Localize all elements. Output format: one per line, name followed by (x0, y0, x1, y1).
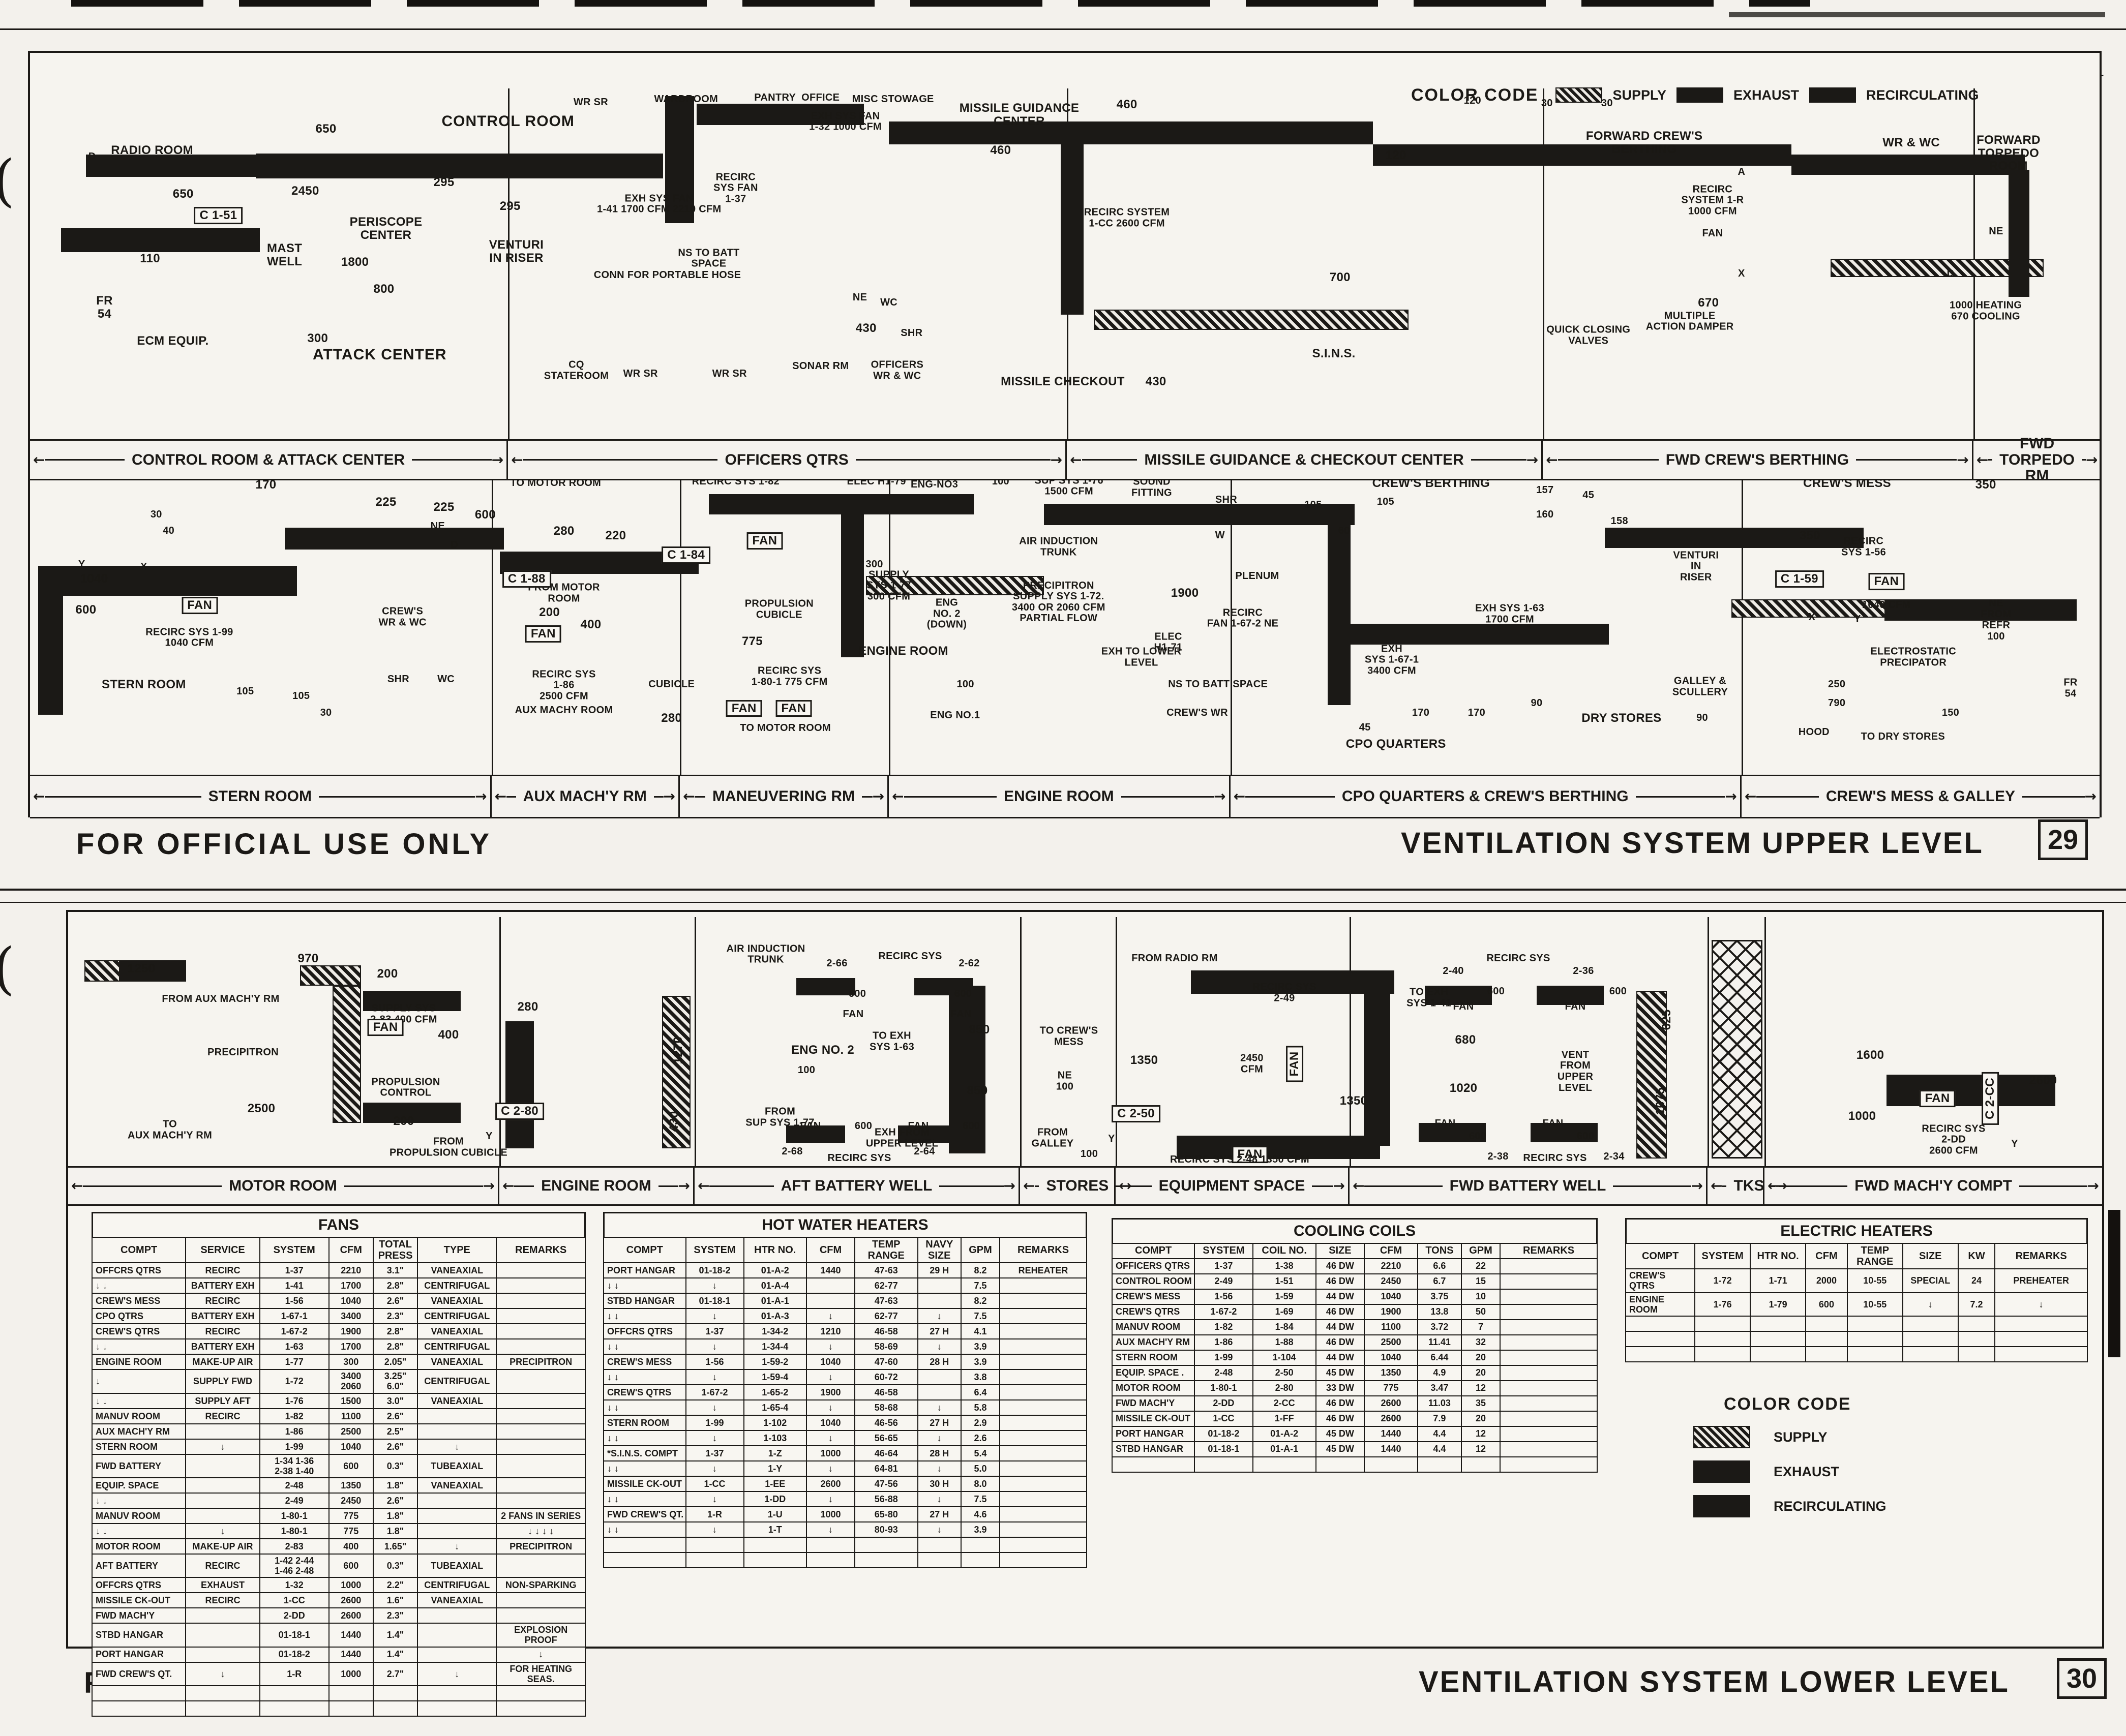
diagram-label: WR & WC (1882, 136, 1940, 149)
table-cell: MISSILE CK-OUT (604, 1476, 686, 1491)
table-cell: 5.0 (961, 1461, 1000, 1476)
supply-label: SUPPLY (1774, 1430, 1828, 1444)
section-missile-guidance-checkout-center: ←MISSILE GUIDANCE & CHECKOUT CENTER→ (1067, 441, 1543, 479)
table-cell: 1.8" (373, 1478, 417, 1493)
diagram-label: D (1947, 268, 1955, 280)
diagram-label: CREW'S WR (1166, 708, 1228, 719)
table-cell: 1-59-2 (744, 1354, 807, 1369)
diagram-label: WC (880, 297, 897, 309)
diagram-label: 100 (1081, 1149, 1098, 1160)
table-cell (417, 1409, 496, 1424)
compartment-divider (1742, 477, 1743, 775)
table-cell (417, 1623, 496, 1647)
table-row: CREW'S QTRSRECIRC1-67-219002.8"VANEAXIAL (92, 1324, 585, 1339)
table-cell: 775 (329, 1524, 373, 1539)
table-cell: FWD MACH'Y (92, 1608, 186, 1623)
diagram-label: 1000 HEATING 670 COOLING (1950, 300, 2022, 322)
table-cell (855, 1537, 918, 1552)
table-cell: ↓ (806, 1491, 855, 1507)
table-cell: TUBEAXIAL (417, 1554, 496, 1577)
diagram-label: FAN (368, 1019, 404, 1036)
recirculating-label: RECIRCULATING (1774, 1500, 1886, 1513)
tank-trunk (1712, 940, 1762, 1159)
table-row: FWD MACH'Y2-DD2-CC46 DW260011.0335 (1112, 1396, 1597, 1411)
diagram-label: FAN (1565, 1001, 1586, 1013)
table-row: CONTROL ROOM2-491-5146 DW24506.715 (1112, 1274, 1597, 1289)
exhaust-duct (285, 528, 504, 550)
table-cell (496, 1324, 585, 1339)
table-cell: 1-37 (1194, 1259, 1252, 1274)
supply-label: SUPPLY (1612, 88, 1666, 102)
sheet: TAB-SSG574-VOL.1 650RADIO ROOMCONTROL RO… (0, 0, 2126, 1736)
table-cell: 11.03 (1418, 1396, 1461, 1411)
table-cell: FWD BATTERY (92, 1454, 186, 1478)
table-cell (1461, 1457, 1500, 1472)
diagram-label: EXH SYS FAN 1-32 1000 CFM (809, 111, 882, 133)
color-code-title: COLOR CODE (1724, 1395, 1937, 1413)
section-line (1245, 796, 1335, 798)
diagram-label: 225 (434, 501, 455, 514)
upper-diagram-row2: TO MOTOR ROOMRECIRC SYS 1-82ELEC H1-79EN… (30, 477, 2100, 775)
section-line (709, 1185, 773, 1187)
table-cell: 2600 (329, 1593, 373, 1608)
table-cell (1806, 1331, 1847, 1347)
section-line (1856, 459, 1957, 461)
table-cell (417, 1647, 496, 1662)
table-cell: 1000 (329, 1662, 373, 1686)
diagram-label: 430 (668, 1111, 681, 1132)
table-cell: 1000 (806, 1446, 855, 1461)
diagram-label: 158 (1611, 516, 1628, 527)
diagram-label: SHR (1215, 495, 1237, 506)
diagram-label: 430 (1146, 375, 1166, 388)
section-cpo-quarters-crew-s-berthing: ←CPO QUARTERS & CREW'S BERTHING→ (1231, 776, 1742, 817)
diagram-label: FAN (843, 1009, 864, 1020)
section-label: ENGINE ROOM (534, 1178, 658, 1194)
diagram-label: RECIRC SYS 1-86 2500 CFM (532, 669, 595, 702)
table-cell: ↓ (806, 1522, 855, 1537)
arrow-left-icon: ← (1023, 1179, 1035, 1193)
table-cell: 2 FANS IN SERIES (496, 1508, 585, 1524)
table-cell: RECIRC (186, 1263, 260, 1278)
table-cell: VANEAXIAL (417, 1593, 496, 1608)
diagram-label: WARDROOM (654, 94, 718, 105)
table-cell: ↓ (417, 1662, 496, 1686)
table-cell (496, 1686, 585, 1701)
table-cell: BATTERY EXH (186, 1278, 260, 1293)
table-cell: VANEAXIAL (417, 1293, 496, 1308)
section-line (904, 796, 997, 798)
table-cell (417, 1493, 496, 1508)
table-cell: 0.3" (373, 1554, 417, 1577)
diagram-label: PROPULSION CONTROL (371, 1077, 440, 1099)
cooling_coils-grid: COMPTSYSTEMCOIL NO.SIZECFMTONSGPMREMARKS… (1112, 1243, 1598, 1473)
table-cell: 1040 (1364, 1289, 1418, 1304)
diagram-label: 60 (1338, 526, 1350, 537)
table-cell: 1-EE (744, 1476, 807, 1491)
diagram-label: 200 (394, 1115, 414, 1128)
table-cell (1958, 1316, 1995, 1331)
section-label: CPO QUARTERS & CREW'S BERTHING (1335, 788, 1636, 805)
section-line (523, 459, 718, 461)
section-line (939, 1185, 1003, 1187)
table-cell: ↓ (186, 1524, 260, 1539)
table-cell: 1-65-4 (744, 1400, 807, 1415)
arrow-left-icon: ← (71, 1179, 83, 1193)
table-cell: 46-56 (855, 1415, 918, 1430)
table-cell: ↓ (686, 1430, 744, 1446)
exhaust-duct (796, 978, 855, 995)
table-cell: 2-48 (1194, 1365, 1252, 1381)
table-cell: CREW'S MESS (92, 1293, 186, 1308)
table-cell: MISSILE CK-OUT (1112, 1411, 1194, 1426)
table-cell: 10-55 (1847, 1293, 1903, 1316)
table-cell: STERN ROOM (1112, 1350, 1194, 1365)
table-cell (1364, 1457, 1418, 1472)
table-cell: 1-37 (686, 1446, 744, 1461)
table-cell (417, 1608, 496, 1623)
table-row: MANUV ROOM1-821-8444 DW11003.727 (1112, 1320, 1597, 1335)
section-line (514, 1185, 534, 1187)
diagram-label: 225 (376, 496, 397, 509)
table-cell: 1-67-2 (686, 1385, 744, 1400)
table-cell (496, 1293, 585, 1308)
table-cell: 1-R (686, 1507, 744, 1522)
section-label: MANEUVERING RM (705, 788, 862, 805)
table-cell: ↓ (686, 1491, 744, 1507)
column-header: TEMP RANGE (855, 1237, 918, 1263)
table-cell (496, 1608, 585, 1623)
column-header: SYSTEM (1194, 1243, 1252, 1259)
table-cell: ENGINE ROOM (1626, 1293, 1695, 1316)
table-cell: 01-A-3 (744, 1308, 807, 1324)
table-title: COOLING COILS (1112, 1218, 1598, 1243)
table-cell (1500, 1350, 1597, 1365)
arrow-left-icon: ← (698, 1179, 709, 1193)
section-line (2082, 459, 2086, 461)
table-cell (1000, 1308, 1087, 1324)
arrow-right-icon: → (1526, 453, 1538, 467)
arrow-right-icon: → (492, 453, 503, 467)
table-cell: 2450 (1364, 1274, 1418, 1289)
table-cell (686, 1552, 744, 1568)
table-cell: 5.8 (961, 1400, 1000, 1415)
table-cell: 3.9 (961, 1339, 1000, 1354)
diagram-label: 1075 (1654, 1087, 1667, 1115)
diagram-label: 1350 (1130, 1054, 1158, 1067)
table-cell: 1-99 (686, 1415, 744, 1430)
table-cell: PRECIPITRON (496, 1539, 585, 1554)
table-cell: 62-77 (855, 1278, 918, 1293)
table-cell (961, 1537, 1000, 1552)
compartment-divider (1543, 88, 1544, 439)
diagram-label: 600 (963, 1121, 980, 1132)
table-cell: CENTRIFUGAL (417, 1577, 496, 1593)
table-cell: ↓ ↓ (604, 1522, 686, 1537)
supply-duct (1094, 310, 1409, 330)
section-label: FWD TORPEDO RM (1992, 436, 2082, 484)
table-cell: CREW'S QTRS (92, 1324, 186, 1339)
table-cell: ↓ (686, 1339, 744, 1354)
diagram-label: RECIRC SYS 1-99 1040 CFM (145, 627, 233, 649)
diagram-label: 100 (956, 679, 974, 690)
table-cell: 46 DW (1316, 1396, 1364, 1411)
table-cell: RECIRC (186, 1593, 260, 1608)
table-row: OFFCRS QTRSRECIRC1-3722103.1"VANEAXIAL (92, 1263, 585, 1278)
table-cell: 2-80 (1253, 1381, 1316, 1396)
diagram-label: 90 (1696, 713, 1708, 724)
table-cell: 2600 (1364, 1396, 1418, 1411)
table-cell: AUX MACH'Y RM (1112, 1335, 1194, 1350)
diagram-label: 2500 (248, 1102, 276, 1115)
table-cell: OFFCRS QTRS (92, 1263, 186, 1278)
table-row: STERN ROOM1-991-10444 DW10406.4420 (1112, 1350, 1597, 1365)
table-cell: ↓ ↓ (92, 1393, 186, 1409)
table-cell (1500, 1335, 1597, 1350)
table-cell: 12 (1461, 1426, 1500, 1442)
upper-level-panel: 650RADIO ROOMCONTROL ROOM2450295PERISCOP… (28, 51, 2102, 817)
table-cell (1500, 1442, 1597, 1457)
table-cell: STERN ROOM (604, 1415, 686, 1430)
diagram-label: 600 (475, 508, 496, 522)
table-cell: 3.75 (1418, 1289, 1461, 1304)
table-row: FWD CREW'S QT.↓1-R10002.7"↓FOR HEATING S… (92, 1662, 585, 1686)
exhaust-duct (1328, 523, 1351, 706)
table-cell: 2-49 (1194, 1274, 1252, 1289)
table-cell: 45 DW (1316, 1442, 1364, 1457)
column-header: SIZE (1903, 1243, 1958, 1269)
table-row: STBD HANGAR01-18-101-A-147-638.2 (604, 1293, 1087, 1308)
diagram-label: TO EXH SYS 1-63 (870, 1030, 914, 1052)
table-cell: 30 H (918, 1476, 962, 1491)
section-line (319, 796, 475, 798)
section-line (695, 796, 705, 798)
diagram-label: NS TO BATT SPACE (1168, 679, 1268, 690)
table-cell: PRECIPITRON (496, 1354, 585, 1369)
diagram-label: Y (1108, 1134, 1115, 1145)
table-cell (1500, 1457, 1597, 1472)
section-line (344, 1185, 483, 1187)
table-cell: 300 (329, 1354, 373, 1369)
table-cell: 2.3" (373, 1308, 417, 1324)
table-cell (1000, 1537, 1087, 1552)
table-cell: ↓ (806, 1308, 855, 1324)
table-cell (1418, 1457, 1461, 1472)
section-aft-battery-well: ←AFT BATTERY WELL→ (695, 1168, 1020, 1204)
table-cell: VANEAXIAL (417, 1354, 496, 1369)
table-cell: FOR HEATING SEAS. (496, 1662, 585, 1686)
diagram-label: 280 (661, 712, 682, 725)
table-row (92, 1701, 585, 1716)
table-cell (417, 1424, 496, 1439)
table-cell (1958, 1331, 1995, 1347)
table-cell (496, 1369, 585, 1393)
scan-artifact (2108, 1210, 2120, 1357)
section-line (45, 459, 125, 461)
table-cell (186, 1686, 260, 1701)
recirculating-label: RECIRCULATING (1866, 88, 1979, 102)
diagram-label: 625 (1660, 1009, 1673, 1030)
diagram-label: PROPULSION CUBICLE (745, 599, 814, 621)
table-cell (1253, 1457, 1316, 1472)
table-cell: 1-R (260, 1662, 329, 1686)
table-cell: ↓ (806, 1369, 855, 1385)
table-cell: CENTRIFUGAL (417, 1339, 496, 1354)
table-cell: 1210 (806, 1324, 855, 1339)
table-row (1626, 1316, 2087, 1331)
arrow-left-icon: ← (1745, 789, 1756, 804)
table-cell: 7.2 (1958, 1293, 1995, 1316)
upper-diagram-row1: 650RADIO ROOMCONTROL ROOM2450295PERISCOP… (30, 88, 2100, 439)
section-line (1558, 459, 1659, 461)
table-cell: ↓ (806, 1400, 855, 1415)
table-row: AUX MACH'Y RM1-8625002.5" (92, 1424, 585, 1439)
arrow-right-icon: → (2086, 453, 2098, 467)
diagram-label: 775 (742, 635, 763, 648)
table-cell: MOTOR ROOM (92, 1539, 186, 1554)
rule-line (0, 902, 2126, 903)
table-row: ↓ ↓BATTERY EXH1-4117002.8"CENTRIFUGAL (92, 1278, 585, 1293)
table-cell: 01-18-1 (1194, 1442, 1252, 1457)
table-cell: 01-A-2 (1253, 1426, 1316, 1442)
rule-line (0, 889, 2126, 891)
column-header: COMPT (1626, 1243, 1695, 1269)
diagram-label: RECIRC SYS 2-48 1350 CFM (1170, 1154, 1309, 1166)
table-cell (1806, 1347, 1847, 1362)
diagram-label: 1600 (1856, 1049, 1884, 1062)
table-cell (1806, 1316, 1847, 1331)
table-cell: AUX MACH'Y RM (92, 1424, 186, 1439)
table-cell (1000, 1491, 1087, 1507)
diagram-label: VENTURI IN RISER (489, 238, 544, 265)
section-line (1779, 1185, 1847, 1187)
column-header: CFM (806, 1237, 855, 1263)
table-cell: 2600 (1364, 1411, 1418, 1426)
table-cell (186, 1701, 260, 1716)
exhaust-swatch-icon (1676, 87, 1723, 103)
table-cell (1500, 1426, 1597, 1442)
table-cell: SPECIAL (1903, 1269, 1958, 1292)
diagram-label: VENTURI IN RISER (1673, 550, 1719, 583)
table-cell (1847, 1316, 1903, 1331)
table-cell: 56-88 (855, 1491, 918, 1507)
exhaust-duct (709, 494, 974, 514)
table-cell: ↓ (1903, 1293, 1958, 1316)
table-row: PORT HANGAR01-18-201-A-245 DW14404.412 (1112, 1426, 1597, 1442)
table-row: PORT HANGAR01-18-201-A-2144047-6329 H8.2… (604, 1263, 1087, 1278)
arrow-right-icon: → (1214, 789, 1225, 804)
table-cell (1626, 1331, 1695, 1347)
electric_heaters-grid: COMPTSYSTEMHTR NO.CFMTEMP RANGESIZEKWREM… (1625, 1243, 2088, 1362)
table-cell: 01-A-4 (744, 1278, 807, 1293)
table-cell (496, 1409, 585, 1424)
diagram-label: 170 (1412, 708, 1429, 719)
table-cell: MANUV ROOM (92, 1409, 186, 1424)
diagram-label: Y (486, 1131, 493, 1142)
scan-artifact (71, 0, 1810, 7)
table-cell (806, 1552, 855, 1568)
column-header: REMARKS (1500, 1243, 1597, 1259)
exhaust-duct (1061, 121, 1084, 315)
section-label: STORES (1039, 1178, 1116, 1194)
table-cell: 1-82 (260, 1409, 329, 1424)
column-header: HTR NO. (744, 1237, 807, 1263)
table-cell (496, 1308, 585, 1324)
table-cell: 1-80-1 (260, 1508, 329, 1524)
exhaust-label: EXHAUST (1774, 1465, 1839, 1479)
table-cell (1112, 1457, 1194, 1472)
scan-artifact (0, 940, 15, 996)
diagram-label: AIR INDUCTION TRUNK (726, 943, 805, 965)
table-cell (496, 1393, 585, 1409)
diagram-label: 670 (1698, 296, 1719, 310)
diagram-label: 45 (1359, 722, 1371, 734)
color-code-title: COLOR CODE (1411, 86, 1538, 104)
table-cell: RECIRC (186, 1409, 260, 1424)
fans-grid: COMPTSERVICESYSTEMCFMTOTAL PRESSTYPEREMA… (92, 1237, 586, 1717)
section-engine-room: ←ENGINE ROOM→ (499, 1168, 695, 1204)
arrow-right-icon: → (1051, 453, 1062, 467)
table-cell: RECIRC (186, 1554, 260, 1577)
table-cell: 2.6" (373, 1293, 417, 1308)
table-cell: ↓ ↓ (604, 1278, 686, 1293)
table-cell: 1-88 (1253, 1335, 1316, 1350)
table-cell: FWD CREW'S QT. (92, 1662, 186, 1686)
diagram-label: EXH SYS 1-63 1700 CFM (1475, 603, 1544, 625)
diagram-label: WC (437, 675, 455, 686)
table-cell: 3.0" (373, 1393, 417, 1409)
table-cell: 46-58 (855, 1324, 918, 1339)
table-cell (1000, 1446, 1087, 1461)
table-cell: 2500 (329, 1424, 373, 1439)
column-header: SIZE (1316, 1243, 1364, 1259)
table-cell: 2000 (1806, 1269, 1847, 1292)
diagram-label: 1900 (1171, 587, 1199, 600)
table-cell (1903, 1316, 1958, 1331)
diagram-label: RECIRC SYS 2-DD 2600 CFM (1922, 1123, 1985, 1156)
table-cell: ↓ ↓ (604, 1400, 686, 1415)
table-cell: BATTERY EXH (186, 1308, 260, 1324)
column-header: TONS (1418, 1243, 1461, 1259)
table-cell: 62-77 (855, 1308, 918, 1324)
diagram-label: 2-62 (959, 958, 979, 969)
exhaust-duct (2009, 170, 2029, 297)
diagram-label: FORWARD CREW'S BERTHING (1586, 130, 1702, 156)
table-cell: SUPPLY FWD (186, 1369, 260, 1393)
table-cell: AFT BATTERY (92, 1554, 186, 1577)
column-header: TYPE (417, 1237, 496, 1263)
diagram-label: W (1215, 530, 1225, 541)
diagram-label: DRY STORES (1581, 712, 1661, 725)
table-cell: 64-81 (855, 1461, 918, 1476)
table-cell (961, 1552, 1000, 1568)
column-header: NAVY SIZE (918, 1237, 962, 1263)
table-cell: ↓ ↓ (92, 1339, 186, 1354)
table-cell: CENTRIFUGAL (417, 1369, 496, 1393)
column-header: COMPT (1112, 1243, 1194, 1259)
table-cell (186, 1647, 260, 1662)
diagram-label: MAST WELL (267, 242, 302, 268)
table-cell (1500, 1381, 1597, 1396)
table-cell: 7.9 (1418, 1411, 1461, 1426)
table-cell: 1-86 (260, 1424, 329, 1439)
section-line (2019, 1185, 2087, 1187)
diagram-label: 1020 (1450, 1082, 1478, 1095)
diagram-label: 1040 (80, 572, 108, 586)
column-header: HTR NO. (1750, 1243, 1806, 1269)
table-cell (1000, 1507, 1087, 1522)
section-divider-lower: ←MOTOR ROOM→←ENGINE ROOM→←AFT BATTERY WE… (68, 1166, 2102, 1206)
